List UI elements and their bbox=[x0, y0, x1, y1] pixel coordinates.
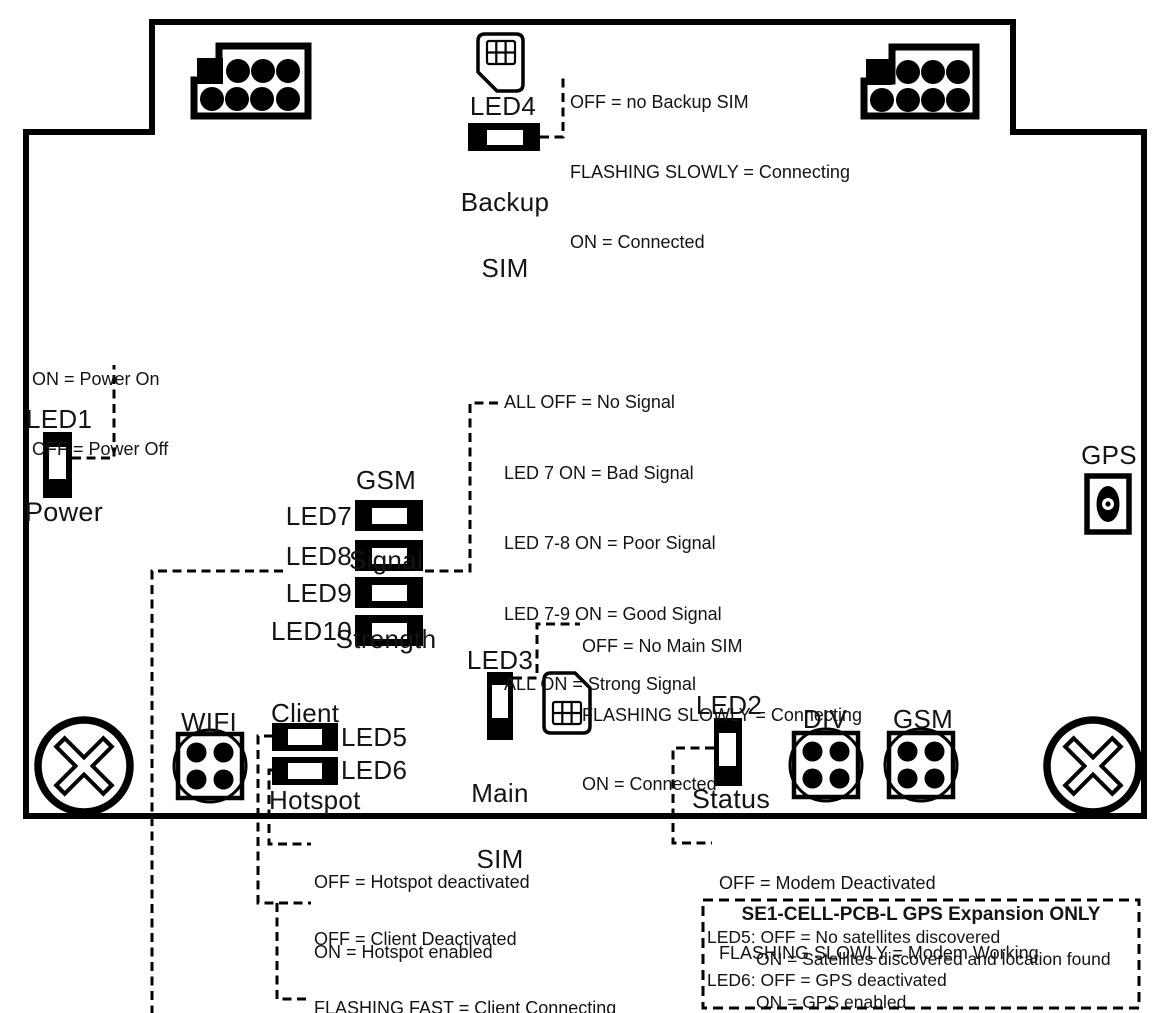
connector-8pin-right bbox=[864, 47, 976, 116]
client-label: Client bbox=[271, 698, 339, 729]
state-line: ON = Power On bbox=[32, 368, 168, 391]
led3-label: LED3 bbox=[449, 645, 551, 676]
state-line: ALL OFF = No Signal bbox=[504, 391, 722, 415]
status-label: Status bbox=[678, 784, 784, 815]
led5-label: LED5 bbox=[341, 723, 407, 751]
gsm-signal-title-line1: GSM bbox=[306, 467, 466, 494]
led9-label: LED9 bbox=[230, 578, 352, 608]
led2-label: LED2 bbox=[679, 690, 779, 721]
state-line: OFF = No Main SIM bbox=[582, 635, 862, 658]
state-line: LED 7 ON = Bad Signal bbox=[504, 462, 722, 486]
led7-label: LED7 bbox=[230, 501, 352, 531]
power-label: Power bbox=[25, 497, 103, 528]
gps-antenna-connector bbox=[1087, 476, 1129, 532]
backup-sim-label-line2: SIM bbox=[452, 257, 558, 279]
led6-label: LED6 bbox=[341, 756, 407, 784]
connector-8pin-left bbox=[194, 46, 308, 116]
gps-expansion-line: LED6: OFF = GPS deactivated bbox=[707, 970, 947, 991]
mounting-hole-right bbox=[1047, 720, 1139, 812]
gps-expansion-line: ON = GPS enabled bbox=[756, 992, 906, 1013]
sim-card-icon-backup bbox=[478, 34, 523, 91]
gsm-connector-label: GSM bbox=[874, 704, 972, 735]
led8-label: LED8 bbox=[230, 541, 352, 571]
led4-label: LED4 bbox=[455, 91, 551, 122]
wifi-connector-label: WIFI bbox=[159, 707, 259, 738]
gsm-antenna-connector bbox=[885, 729, 957, 801]
wifi-antenna-connector bbox=[174, 730, 246, 802]
gps-connector-label: GPS bbox=[1059, 440, 1159, 471]
state-line: OFF = Modem Deactivated bbox=[719, 872, 1039, 895]
led6-indicator bbox=[272, 757, 338, 785]
hotspot-label: Hotspot bbox=[269, 785, 361, 816]
state-line: LED 7-8 ON = Poor Signal bbox=[504, 532, 722, 556]
state-line: FLASHING SLOWLY = Connecting bbox=[570, 161, 850, 184]
state-line: ON = Connected bbox=[570, 231, 850, 254]
state-line: OFF = no Backup SIM bbox=[570, 91, 850, 114]
led10-label: LED10 bbox=[230, 616, 352, 646]
gps-expansion-line: ON = Satellites discovered and location … bbox=[756, 949, 1111, 970]
div-connector-label: DIV bbox=[776, 704, 874, 735]
state-line: OFF = Power Off bbox=[32, 438, 168, 461]
both-on-state: BOTH ON = Loading WIFI Module bbox=[314, 985, 588, 1013]
state-line: OFF = Client Deactivated bbox=[314, 928, 636, 951]
callout-line-both-on bbox=[277, 903, 311, 999]
main-sim-label-line1: Main bbox=[448, 782, 552, 804]
pcb-led-diagram: OFF = no Backup SIM FLASHING SLOWLY = Co… bbox=[0, 0, 1166, 1013]
gps-expansion-line: LED5: OFF = No satellites discovered bbox=[707, 927, 1000, 948]
backup-sim-label: Backup SIM bbox=[452, 147, 558, 323]
led1-label: LED1 bbox=[26, 404, 92, 435]
mounting-hole-left bbox=[38, 720, 130, 812]
backup-sim-states: OFF = no Backup SIM FLASHING SLOWLY = Co… bbox=[570, 44, 850, 301]
backup-sim-label-line1: Backup bbox=[452, 191, 558, 213]
gps-expansion-box-title: SE1-CELL-PCB-L GPS Expansion ONLY bbox=[704, 904, 1138, 926]
